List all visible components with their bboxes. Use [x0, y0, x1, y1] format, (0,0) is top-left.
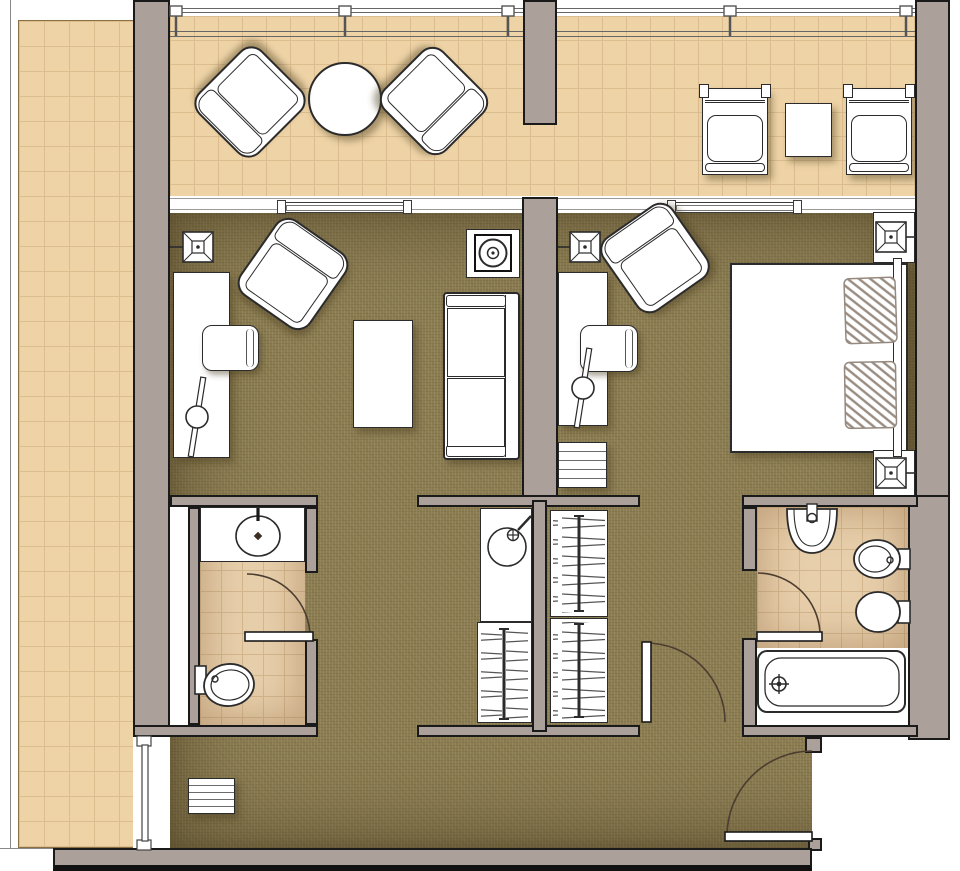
double-bed — [730, 263, 908, 453]
east-wall-upper — [915, 0, 950, 497]
closet-right-bottom — [550, 618, 608, 723]
central-wall — [522, 197, 558, 500]
tv-unit — [474, 234, 512, 272]
terrace-side-table — [785, 103, 832, 157]
bathroom-north-wall — [742, 495, 918, 507]
powder-east-wall-upper — [305, 507, 318, 573]
bathtub-zone — [757, 648, 908, 725]
bathroom-floor — [757, 507, 908, 648]
floor-plan — [0, 0, 960, 871]
core-south-wall — [417, 725, 640, 737]
living-desk-chair — [202, 325, 259, 371]
wet-bar-counter — [480, 508, 532, 622]
nightstand-top — [873, 212, 915, 263]
bedroom-window-sill — [673, 202, 796, 213]
lounge-back — [849, 91, 909, 103]
bottom-left-corner — [0, 848, 53, 871]
entry-jamb-upper — [805, 737, 822, 753]
bathroom-south-wall — [742, 725, 918, 737]
east-wall-lower — [908, 495, 950, 740]
powder-shaft-wall — [188, 507, 200, 725]
powder-south-wall — [133, 725, 318, 737]
closet-left — [477, 622, 532, 723]
window-sill-cap — [403, 200, 412, 214]
terrace-divider-wall — [523, 0, 557, 125]
closet-right-top — [550, 510, 608, 617]
sofa-cushion-bottom — [447, 378, 505, 447]
west-wall — [133, 0, 170, 737]
nightstand-bottom — [873, 450, 915, 501]
core-north-wall — [417, 495, 640, 507]
left-railing-band — [0, 0, 18, 848]
lounge-rail — [705, 163, 765, 172]
terrace-round-table — [308, 62, 382, 136]
powder-east-wall-lower — [305, 639, 318, 725]
balcony-slider-opening — [133, 737, 170, 848]
bedroom-desk-chair — [580, 325, 638, 372]
lounge-cushion — [707, 115, 763, 162]
bedroom-dresser — [558, 442, 607, 488]
lounge-back — [705, 91, 765, 103]
living-coffee-table — [353, 320, 413, 428]
window-sill-cap — [793, 200, 802, 214]
lounge-cushion — [851, 115, 907, 162]
outside-area — [812, 737, 960, 871]
sofa-arm-top — [446, 295, 506, 307]
bottom-wall — [53, 848, 812, 871]
bathroom-west-wall-upper — [742, 507, 757, 571]
bathroom-west-wall-lower — [742, 638, 757, 737]
terrace-lounge-chair-left — [702, 88, 768, 175]
living-room-window-sill — [283, 202, 406, 213]
terrace-lounge-chair-right — [846, 88, 912, 175]
core-divider-wall — [532, 500, 547, 732]
powder-vanity — [200, 507, 305, 562]
living-sofa — [443, 292, 520, 460]
powder-room-shaft — [170, 507, 190, 725]
sofa-back — [505, 295, 517, 457]
left-balcony-floor — [18, 20, 133, 848]
bed-headboard — [893, 258, 902, 457]
lounge-rail — [849, 163, 909, 172]
hall-dresser — [188, 778, 235, 814]
powder-north-wall — [170, 495, 318, 507]
sofa-cushion-top — [447, 308, 505, 377]
